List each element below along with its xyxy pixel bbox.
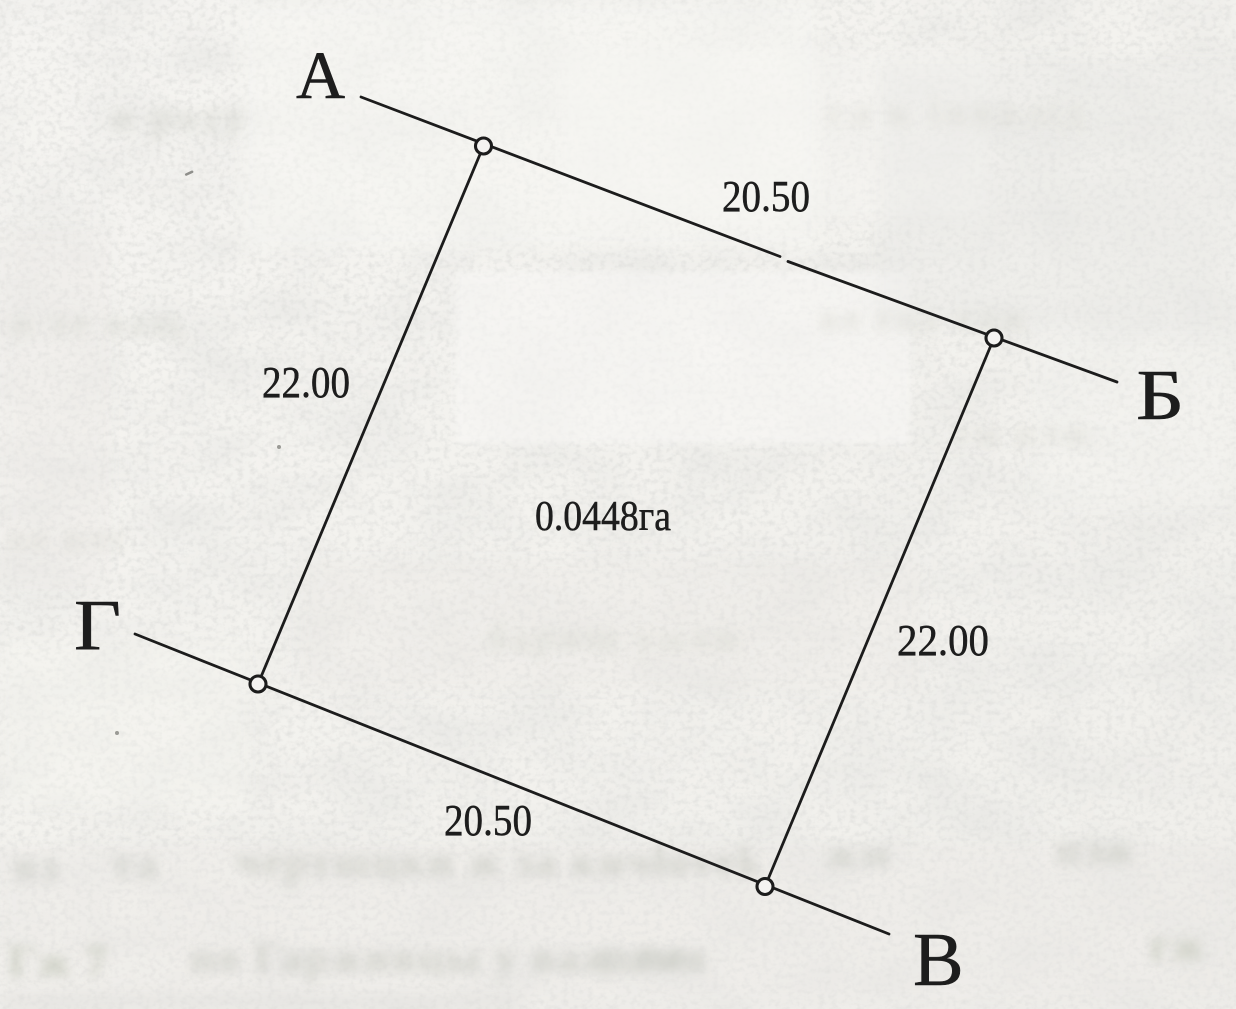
svg-text:ум влж: ум влж	[952, 413, 1092, 453]
svg-text:жм: жм	[826, 829, 892, 878]
svg-text:0.0448га: 0.0448га	[535, 494, 671, 540]
svg-text:Гж 7: Гж 7	[8, 937, 109, 986]
svg-text:20.50: 20.50	[722, 172, 810, 221]
svg-text:ж те ващ: ж те ващ	[8, 303, 186, 343]
svg-text:та: та	[112, 839, 160, 888]
svg-text:са к інвалід: са к інвалід	[828, 89, 1087, 134]
svg-text:у ва: у ва	[600, 929, 687, 978]
svg-text:пэж: пэж	[1056, 825, 1136, 874]
svg-text:Г: Г	[74, 585, 121, 665]
svg-text:не влс: не влс	[6, 518, 131, 558]
svg-text:А: А	[296, 37, 345, 113]
svg-text:Б: Б	[1136, 355, 1184, 435]
svg-text:В: В	[913, 918, 964, 1002]
svg-text:гж: гж	[1150, 921, 1206, 970]
svg-text:в роту: в роту	[112, 94, 248, 139]
svg-text:барищ умлж: барищ умлж	[488, 617, 744, 659]
svg-text:22.00: 22.00	[897, 616, 989, 665]
svg-text:22.00: 22.00	[262, 358, 350, 407]
svg-text:вз: вз	[14, 841, 59, 890]
svg-text:20.50: 20.50	[444, 796, 532, 845]
